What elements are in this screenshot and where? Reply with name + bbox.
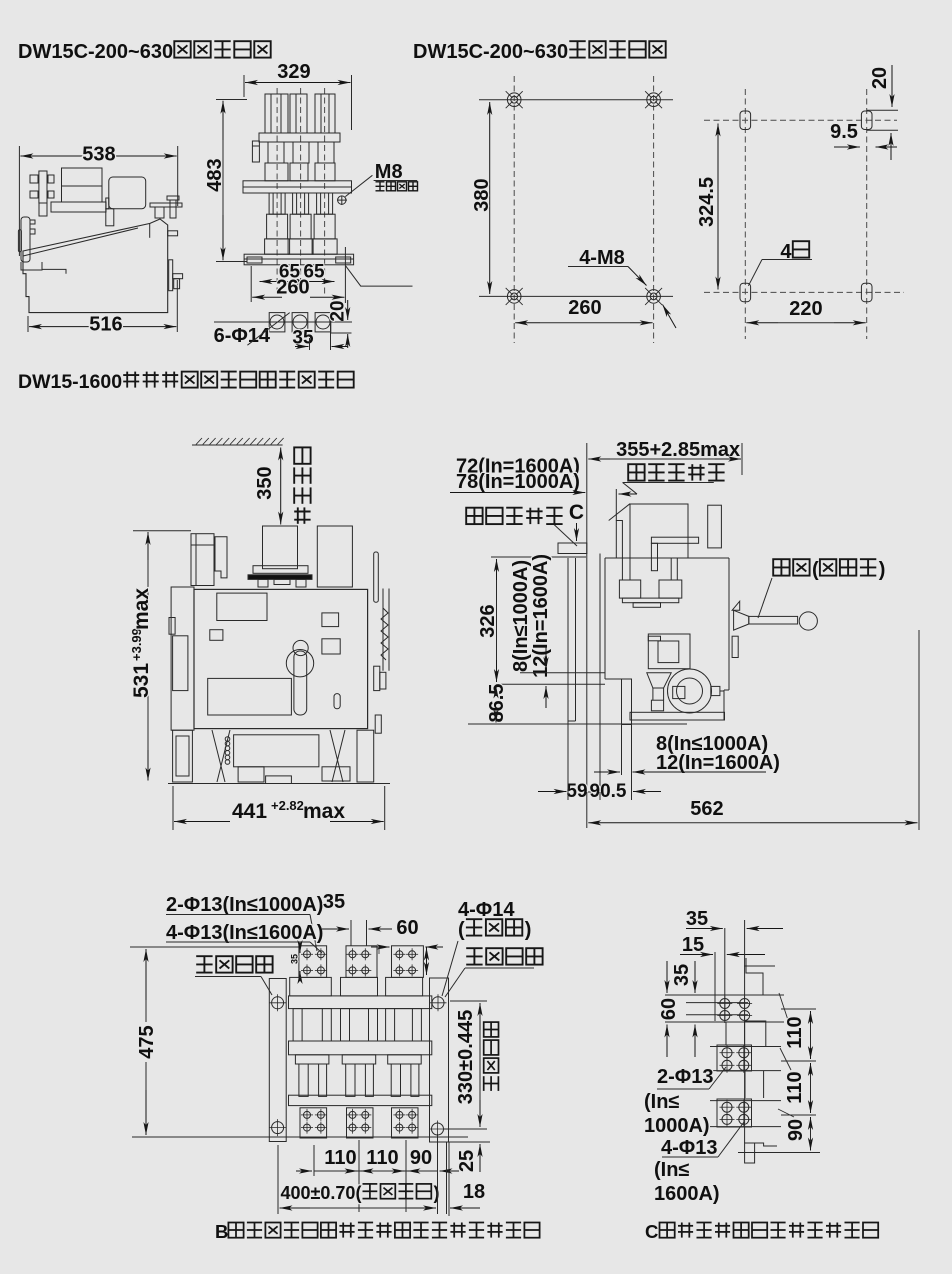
svg-text:DW15C-200~630: DW15C-200~630 [413, 41, 568, 63]
svg-text:86.5: 86.5 [486, 684, 508, 723]
svg-text:(: ( [812, 559, 819, 581]
svg-text:+2.82: +2.82 [271, 798, 304, 813]
svg-text:max: max [303, 800, 345, 823]
svg-text:(: ( [458, 919, 465, 941]
svg-text:4-M8: 4-M8 [579, 247, 625, 269]
svg-text:): ) [525, 919, 532, 941]
svg-text:B: B [215, 1221, 228, 1242]
svg-text:35: 35 [323, 891, 345, 913]
svg-text:+3.99: +3.99 [129, 628, 144, 661]
svg-text:531: 531 [130, 663, 153, 698]
svg-text:110: 110 [784, 1071, 806, 1103]
svg-text:260: 260 [568, 297, 601, 319]
svg-text:562: 562 [690, 798, 723, 820]
svg-text:538: 538 [82, 144, 115, 166]
svg-text:110: 110 [324, 1147, 356, 1169]
svg-text:350: 350 [254, 466, 276, 499]
svg-text:90.5: 90.5 [590, 781, 627, 802]
svg-text:35: 35 [686, 908, 708, 930]
svg-text:4-Φ13(In≤1600A): 4-Φ13(In≤1600A) [166, 922, 323, 944]
svg-text:M8: M8 [375, 161, 403, 183]
svg-text:78(In=1000A): 78(In=1000A) [456, 471, 580, 493]
svg-text:(In≤: (In≤ [654, 1159, 689, 1181]
svg-text:35: 35 [292, 328, 314, 349]
svg-text:441: 441 [232, 800, 267, 823]
svg-text:1600A): 1600A) [654, 1183, 720, 1205]
svg-text:DW15C-200~630: DW15C-200~630 [18, 41, 173, 63]
svg-text:90: 90 [410, 1147, 432, 1169]
svg-text:9.5: 9.5 [830, 121, 858, 143]
svg-text:475: 475 [136, 1025, 158, 1058]
svg-text:110: 110 [366, 1147, 398, 1169]
svg-text:324.5: 324.5 [696, 177, 718, 227]
svg-text:110: 110 [784, 1016, 806, 1048]
svg-text:4-Φ13: 4-Φ13 [661, 1137, 717, 1159]
svg-text:max: max [130, 588, 153, 630]
svg-text:326: 326 [477, 604, 499, 637]
svg-text:355+2.85max: 355+2.85max [616, 439, 740, 461]
svg-text:4-Φ14: 4-Φ14 [458, 899, 515, 921]
svg-text:35: 35 [290, 954, 300, 964]
svg-text:DW15-1600: DW15-1600 [18, 371, 122, 393]
svg-text:(In≤: (In≤ [644, 1091, 679, 1113]
svg-text:8(In≤1000A): 8(In≤1000A) [510, 560, 532, 672]
svg-text:60: 60 [658, 998, 680, 1020]
svg-text:C: C [569, 501, 584, 524]
svg-text:20: 20 [869, 67, 891, 89]
svg-text:12(In=1600A): 12(In=1600A) [530, 554, 552, 678]
svg-text:329: 329 [277, 61, 310, 83]
svg-text:260: 260 [276, 277, 309, 299]
svg-text:59: 59 [566, 781, 587, 802]
svg-text:1000A): 1000A) [644, 1115, 710, 1137]
svg-text:2-Φ13: 2-Φ13 [657, 1066, 713, 1088]
svg-text:90: 90 [785, 1119, 807, 1141]
svg-text:C: C [645, 1221, 658, 1242]
svg-text:25: 25 [456, 1150, 478, 1172]
svg-text:330±0.445: 330±0.445 [455, 1010, 477, 1104]
svg-text:): ) [434, 1183, 440, 1203]
svg-text:20: 20 [328, 300, 349, 321]
svg-text:35: 35 [671, 964, 693, 986]
svg-text:15: 15 [682, 934, 704, 956]
svg-text:18: 18 [463, 1181, 485, 1203]
svg-text:6-Φ14: 6-Φ14 [214, 325, 271, 347]
svg-text:12(In=1600A): 12(In=1600A) [656, 752, 780, 774]
svg-text:483: 483 [204, 158, 226, 191]
svg-text:2-Φ13(In≤1000A): 2-Φ13(In≤1000A) [166, 894, 323, 916]
svg-text:220: 220 [789, 298, 822, 320]
svg-text:60: 60 [396, 917, 418, 939]
svg-text:400±0.70(: 400±0.70( [281, 1183, 362, 1203]
svg-text:516: 516 [89, 314, 122, 336]
svg-text:380: 380 [471, 178, 493, 211]
svg-text:): ) [879, 559, 886, 581]
